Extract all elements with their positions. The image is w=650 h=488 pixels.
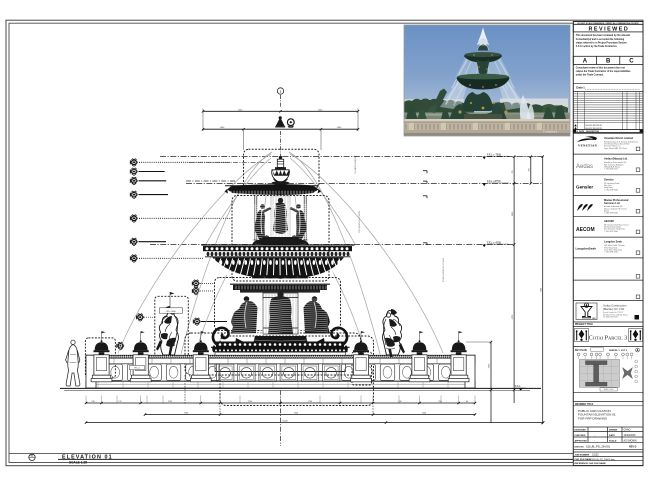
svg-text:KEY PLAN: KEY PLAN — [575, 349, 587, 352]
svg-text:FRP WORKS BY OTHERS: FRP WORKS BY OTHERS — [359, 210, 361, 233]
svg-text:Tel: (853) 2878 6281: Tel: (853) 2878 6281 — [603, 317, 618, 319]
svg-text:R E V I E W E D: R E V I E W E D — [589, 26, 628, 32]
svg-text:7040: 7040 — [294, 412, 298, 414]
svg-text:T.O. WATER FEATURE: T.O. WATER FEATURE — [354, 155, 357, 175]
svg-text:2544: 2544 — [422, 412, 426, 414]
svg-text:under the Trade Contract.: under the Trade Contract. — [576, 74, 604, 77]
svg-text:40: 40 — [466, 401, 468, 403]
svg-text:DESIGNED: DESIGNED — [575, 430, 587, 432]
svg-text:Consultant review of this docu: Consultant review of this document does … — [576, 67, 625, 70]
svg-text:LangdonSeah: LangdonSeah — [576, 247, 597, 251]
svg-text:31123: 31123 — [592, 453, 599, 456]
svg-text:Services Ltd.: Services Ltd. — [604, 201, 620, 205]
svg-text:10/04/2016: 10/04/2016 — [624, 434, 637, 437]
svg-text:7500: 7500 — [540, 287, 542, 292]
svg-text:2730: 2730 — [248, 401, 252, 403]
svg-text:Date |: Date | — [576, 86, 584, 90]
svg-text:T +852 2830 3500: T +852 2830 3500 — [604, 252, 618, 254]
svg-text:Gensler: Gensler — [576, 185, 593, 190]
svg-text:254: 254 — [438, 401, 441, 403]
svg-text:Aedas (Macau) Ltd.: Aedas (Macau) Ltd. — [604, 157, 628, 161]
svg-text:Venetian Orient Limited: Venetian Orient Limited — [604, 136, 633, 140]
svg-text:170: 170 — [118, 401, 121, 403]
svg-text:SCALE: SCALE — [609, 439, 617, 442]
svg-text:Gensler: Gensler — [604, 177, 614, 181]
svg-text:2000: 2000 — [512, 211, 514, 216]
svg-text:FOR FRP DRAWING: FOR FRP DRAWING — [578, 417, 608, 421]
svg-text:F.F.L +6750: F.F.L +6750 — [487, 179, 501, 183]
svg-text:CHAO: CHAO — [624, 429, 631, 432]
svg-text:© fontaines.fr: © fontaines.fr — [543, 130, 557, 133]
svg-text:2730: 2730 — [308, 401, 312, 403]
svg-text:45240: 45240 — [282, 420, 288, 422]
svg-text:CHECKED: CHECKED — [575, 435, 586, 437]
svg-text:JOB NUMBER: JOB NUMBER — [575, 454, 590, 456]
svg-text:AECOM: AECOM — [576, 227, 595, 233]
svg-text:C: C — [629, 59, 634, 65]
svg-text:7040: 7040 — [184, 412, 188, 414]
svg-text:VENETIAN: VENETIAN — [578, 144, 598, 148]
svg-text:DESCRIPTION: DESCRIPTION — [586, 131, 600, 133]
svg-text:T +853 2878 6281: T +853 2878 6281 — [604, 213, 618, 215]
svg-text:DRAWN: DRAWN — [609, 429, 618, 432]
svg-text:F.F.L + 7500: F.F.L + 7500 — [487, 152, 502, 156]
svg-text:Langdon Seah: Langdon Seah — [604, 240, 622, 244]
svg-text:APPROVED: APPROVED — [575, 439, 588, 442]
svg-text:FFL +0: FFL +0 — [134, 368, 139, 370]
svg-text:511UB_PD_28-001: 511UB_PD_28-001 — [586, 445, 610, 449]
svg-text:DWG NO: DWG NO — [575, 446, 585, 448]
svg-text:DRAWING TITLE: DRAWING TITLE — [575, 403, 594, 406]
svg-text:FFL +2600: FFL +2600 — [166, 311, 175, 313]
svg-text:F.F.L.: F.F.L. — [515, 384, 521, 388]
svg-text:T +852 2598 9008: T +852 2598 9008 — [604, 189, 618, 191]
svg-text:REV D: REV D — [629, 446, 637, 449]
svg-text:CAD FILE NAME: CAD FILE NAME — [575, 458, 593, 461]
svg-text:This document has been reviewe: This document has been reviewed by the r… — [576, 34, 630, 37]
svg-text:10/04/16 REVISION: 10/04/16 REVISION — [585, 125, 603, 127]
svg-text:SCALE 1:25: SCALE 1:25 — [69, 460, 87, 464]
svg-text:Taipa, Macau SAR, P.R. China: Taipa, Macau SAR, P.R. China — [604, 147, 627, 150]
svg-text:status referred to in Projec: status referred to in Project Procedure … — [576, 41, 628, 44]
svg-text:T +853 2833 1027: T +853 2833 1027 — [604, 169, 618, 171]
svg-text:Youbo Construction: Youbo Construction — [603, 304, 627, 308]
svg-text:REFERENCE CAD FILE NAME: REFERENCE CAD FILE NAME — [575, 462, 607, 465]
svg-text:4750: 4750 — [512, 314, 514, 319]
svg-text:F.F.L + 4750: F.F.L + 4750 — [487, 240, 502, 244]
svg-text:2730: 2730 — [168, 401, 172, 403]
svg-text:5.4 for action by the Trade Co: 5.4 for action by the Trade Contractor. — [576, 45, 618, 48]
svg-text:relieve the Trade Contractor o: relieve the Trade Contractor of his resp… — [576, 70, 631, 73]
svg-text:750: 750 — [529, 167, 531, 171]
svg-text:Consultant(s)/ and is accorded: Consultant(s)/ and is accorded the follo… — [576, 38, 625, 41]
svg-text:740: 740 — [398, 401, 401, 403]
svg-text:(Macau) CO. LTD.: (Macau) CO. LTD. — [603, 307, 625, 311]
svg-text:STONE WORKS BY OTHERS: STONE WORKS BY OTHERS — [443, 257, 445, 282]
svg-text:Aedas: Aedas — [576, 164, 593, 170]
svg-text:740: 740 — [91, 401, 94, 403]
svg-text:Rua de Pequim No. 173-177: Rua de Pequim No. 173-177 — [603, 312, 623, 314]
svg-text:AS SHOWN: AS SHOWN — [624, 439, 637, 442]
svg-text:A: A — [583, 59, 588, 65]
svg-text:B: B — [606, 59, 611, 65]
svg-text:3050: 3050 — [489, 363, 491, 368]
svg-text:DATE: DATE — [579, 130, 585, 133]
svg-text:750: 750 — [512, 169, 514, 173]
svg-text:AECOM: AECOM — [604, 219, 614, 223]
svg-text:T +852 3922 9000: T +852 3922 9000 — [604, 231, 618, 233]
svg-text:DATE: DATE — [609, 434, 615, 437]
svg-text:PARCEL 1, LOT 2: PARCEL 1, LOT 2 — [609, 349, 628, 352]
svg-text:PROJECT TITLE: PROJECT TITLE — [575, 324, 593, 326]
